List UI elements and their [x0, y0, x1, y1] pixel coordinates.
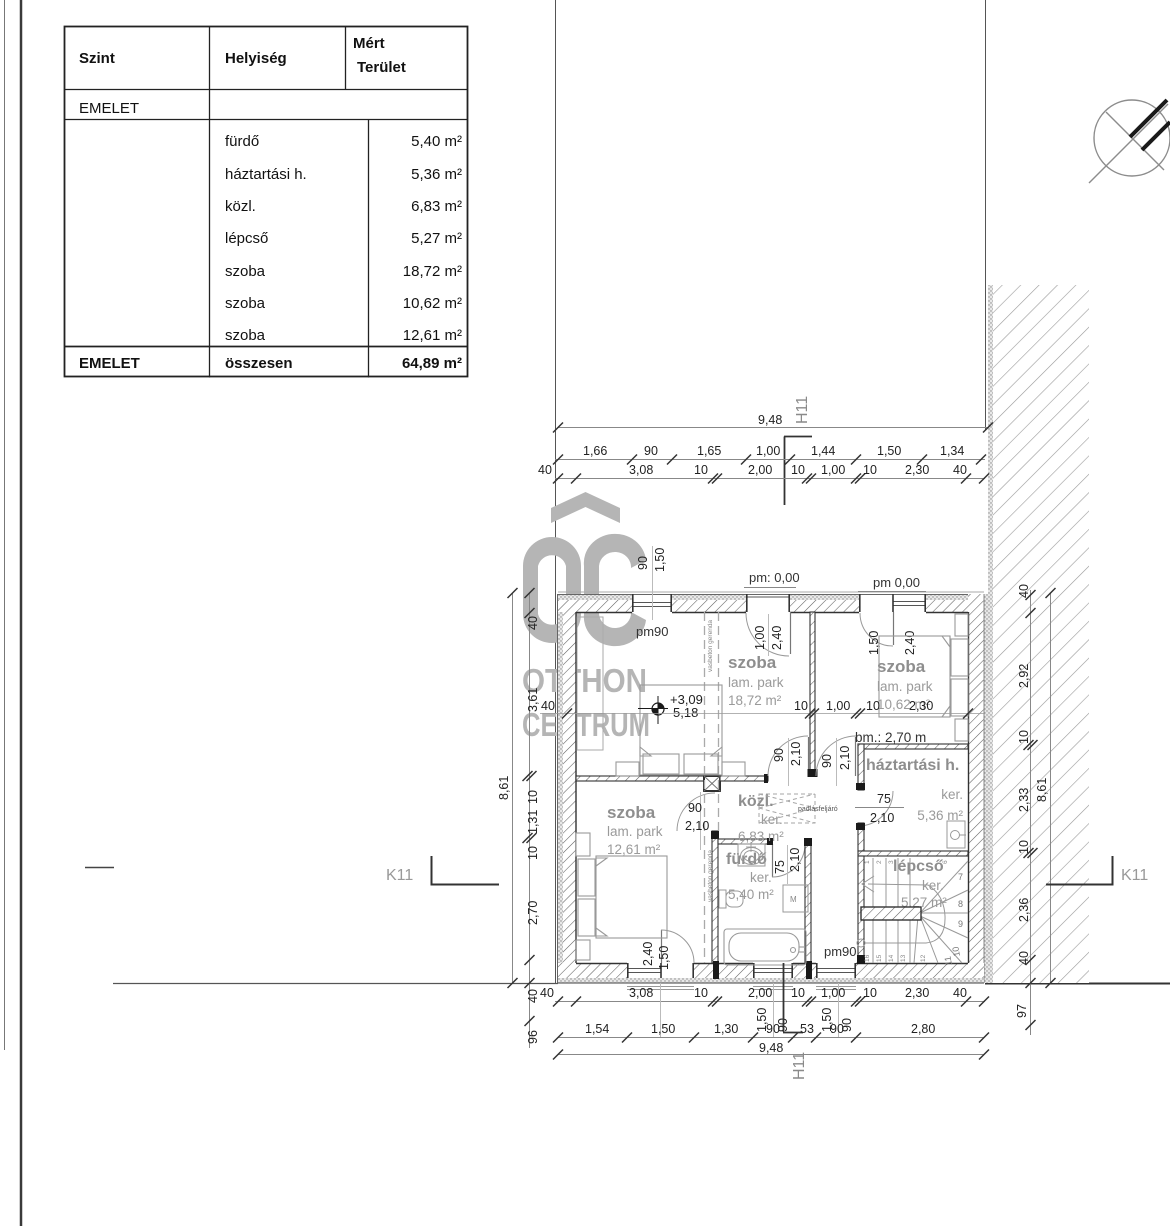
svg-text:lépcső: lépcső — [225, 230, 268, 247]
svg-text:1,00: 1,00 — [753, 626, 767, 650]
svg-text:közl.: közl. — [738, 793, 774, 810]
svg-text:75: 75 — [877, 792, 891, 806]
svg-text:97: 97 — [1015, 1004, 1029, 1018]
svg-text:pm90: pm90 — [636, 624, 669, 639]
svg-text:lam. park: lam. park — [877, 679, 933, 694]
svg-text:H11: H11 — [791, 1052, 808, 1080]
svg-text:1,65: 1,65 — [697, 444, 721, 458]
svg-text:1,00: 1,00 — [821, 986, 845, 1000]
svg-text:18,72 m²: 18,72 m² — [403, 263, 462, 280]
svg-text:1,50: 1,50 — [651, 1022, 675, 1036]
svg-text:2,40: 2,40 — [641, 942, 655, 966]
svg-text:5,40 m²: 5,40 m² — [728, 887, 774, 902]
svg-text:10: 10 — [866, 699, 880, 713]
svg-text:2,10: 2,10 — [870, 811, 894, 825]
svg-text:10: 10 — [863, 986, 877, 1000]
svg-text:5,36 m²: 5,36 m² — [411, 166, 462, 183]
svg-text:9,48: 9,48 — [759, 1041, 783, 1055]
svg-text:40: 40 — [526, 989, 540, 1003]
svg-text:6,83 m²: 6,83 m² — [411, 198, 462, 215]
svg-text:szoba: szoba — [877, 657, 926, 676]
svg-text:2,00: 2,00 — [748, 986, 772, 1000]
svg-text:1,00: 1,00 — [756, 444, 780, 458]
svg-text:40: 40 — [540, 986, 554, 1000]
svg-text:lam. park: lam. park — [607, 824, 663, 839]
svg-text:18,72 m²: 18,72 m² — [728, 693, 782, 708]
svg-text:2,30: 2,30 — [905, 986, 929, 1000]
svg-text:3,61: 3,61 — [526, 688, 540, 712]
svg-text:3: 3 — [888, 860, 895, 864]
svg-text:szoba: szoba — [225, 263, 266, 280]
svg-text:5,40 m²: 5,40 m² — [411, 133, 462, 150]
svg-text:10: 10 — [1017, 730, 1031, 744]
svg-text:12,61 m²: 12,61 m² — [607, 842, 661, 857]
svg-text:ker.: ker. — [761, 812, 783, 827]
svg-text:K11: K11 — [386, 867, 413, 884]
svg-text:9: 9 — [958, 919, 963, 929]
svg-text:szoba: szoba — [225, 327, 266, 344]
svg-text:1,34: 1,34 — [940, 444, 964, 458]
svg-text:12,61 m²: 12,61 m² — [403, 327, 462, 344]
svg-text:háztartási h.: háztartási h. — [866, 757, 959, 774]
svg-text:közl.: közl. — [225, 198, 256, 215]
svg-text:10: 10 — [526, 790, 540, 804]
svg-text:90: 90 — [766, 1022, 780, 1036]
svg-text:vasbeton gerenda: vasbeton gerenda — [707, 620, 714, 672]
svg-text:11: 11 — [942, 955, 953, 966]
svg-text:12: 12 — [920, 954, 927, 962]
svg-text:összesen: összesen — [225, 355, 293, 372]
svg-text:10: 10 — [694, 986, 708, 1000]
svg-text:8,61: 8,61 — [1035, 778, 1049, 802]
svg-text:40: 40 — [953, 463, 967, 477]
svg-text:40: 40 — [953, 986, 967, 1000]
svg-text:2,40: 2,40 — [770, 626, 784, 650]
svg-text:1,50: 1,50 — [877, 444, 901, 458]
svg-text:H11: H11 — [794, 396, 811, 424]
svg-text:6,83 m²: 6,83 m² — [738, 829, 784, 844]
svg-text:90: 90 — [772, 748, 786, 762]
svg-text:1,00: 1,00 — [826, 699, 850, 713]
svg-text:1,66: 1,66 — [583, 444, 607, 458]
svg-text:ker.: ker. — [750, 870, 772, 885]
svg-text:2,10: 2,10 — [789, 742, 803, 766]
svg-text:9,48: 9,48 — [758, 413, 782, 427]
svg-text:5,18: 5,18 — [673, 705, 698, 720]
svg-text:1,50: 1,50 — [657, 946, 671, 970]
svg-text:15: 15 — [876, 954, 883, 962]
svg-text:3,08: 3,08 — [629, 463, 653, 477]
svg-text:7: 7 — [958, 872, 963, 882]
svg-text:2: 2 — [876, 860, 883, 864]
svg-text:pm90: pm90 — [824, 944, 857, 959]
svg-text:64,89 m²: 64,89 m² — [402, 355, 462, 372]
svg-text:10: 10 — [1017, 840, 1031, 854]
svg-text:2,40: 2,40 — [903, 631, 917, 655]
svg-text:2,92: 2,92 — [1017, 664, 1031, 688]
svg-text:10: 10 — [526, 846, 540, 860]
svg-text:90: 90 — [820, 754, 834, 768]
svg-text:2,00: 2,00 — [748, 463, 772, 477]
svg-text:2,30: 2,30 — [905, 463, 929, 477]
svg-text:fürdő: fürdő — [225, 133, 259, 150]
svg-text:2,10: 2,10 — [788, 848, 802, 872]
svg-text:40: 40 — [541, 699, 555, 713]
svg-text:háztartási h.: háztartási h. — [225, 166, 307, 183]
svg-text:M: M — [790, 895, 797, 904]
svg-text:1,31: 1,31 — [526, 810, 540, 834]
svg-text:2,70: 2,70 — [526, 901, 540, 925]
svg-text:padlásfeljáró: padlásfeljáró — [798, 806, 838, 813]
svg-text:10,62 m²: 10,62 m² — [403, 295, 462, 312]
svg-text:ker.: ker. — [941, 787, 963, 802]
svg-text:96: 96 — [526, 1030, 540, 1044]
svg-text:vasbeton gerenda: vasbeton gerenda — [707, 850, 714, 902]
svg-text:90: 90 — [636, 556, 650, 570]
svg-text:14: 14 — [888, 954, 895, 962]
svg-text:1: 1 — [864, 860, 871, 864]
svg-text:40: 40 — [526, 616, 540, 630]
svg-text:OTTHON: OTTHON — [522, 662, 647, 699]
svg-text:8: 8 — [958, 899, 963, 909]
svg-text:szoba: szoba — [225, 295, 266, 312]
svg-text:EMELET: EMELET — [79, 355, 140, 372]
svg-text:10: 10 — [791, 463, 805, 477]
svg-text:bm.: 2,70 m: bm.: 2,70 m — [855, 730, 926, 745]
svg-text:EMELET: EMELET — [79, 100, 139, 117]
svg-text:2,33: 2,33 — [1017, 788, 1031, 812]
svg-text:Mért: Mért — [353, 35, 385, 52]
svg-text:10: 10 — [863, 463, 877, 477]
svg-text:10: 10 — [791, 986, 805, 1000]
svg-text:1,44: 1,44 — [811, 444, 835, 458]
svg-text:2,10: 2,10 — [685, 819, 709, 833]
svg-text:13: 13 — [900, 954, 907, 962]
svg-text:2,30: 2,30 — [909, 699, 933, 713]
svg-text:90: 90 — [830, 1022, 844, 1036]
svg-text:lépcső: lépcső — [893, 858, 944, 875]
svg-text:53: 53 — [800, 1022, 814, 1036]
svg-text:5,27 m²: 5,27 m² — [411, 230, 462, 247]
svg-text:K11: K11 — [1121, 867, 1148, 884]
svg-text:8,61: 8,61 — [497, 776, 511, 800]
svg-text:pm 0,00: pm 0,00 — [873, 575, 920, 590]
svg-text:Szint: Szint — [79, 50, 115, 67]
svg-text:1,00: 1,00 — [821, 463, 845, 477]
svg-text:90: 90 — [688, 801, 702, 815]
svg-text:40: 40 — [1017, 951, 1031, 965]
svg-text:1,30: 1,30 — [714, 1022, 738, 1036]
svg-text:1,54: 1,54 — [585, 1022, 609, 1036]
svg-text:szoba: szoba — [607, 803, 656, 822]
svg-text:1,50: 1,50 — [653, 548, 667, 572]
svg-text:6: 6 — [942, 860, 949, 864]
svg-text:2,36: 2,36 — [1017, 898, 1031, 922]
svg-text:40: 40 — [538, 463, 552, 477]
svg-text:lam. park: lam. park — [728, 675, 784, 690]
svg-text:75: 75 — [773, 860, 787, 874]
svg-text:16: 16 — [864, 954, 871, 962]
svg-text:10: 10 — [794, 699, 808, 713]
svg-text:szoba: szoba — [728, 653, 777, 672]
svg-text:Helyiség: Helyiség — [225, 50, 287, 67]
svg-text:3,08: 3,08 — [629, 986, 653, 1000]
svg-text:pm: 0,00: pm: 0,00 — [749, 570, 800, 585]
svg-text:90: 90 — [644, 444, 658, 458]
svg-text:2,80: 2,80 — [911, 1022, 935, 1036]
svg-text:10: 10 — [694, 463, 708, 477]
svg-text:40: 40 — [1017, 584, 1031, 598]
svg-text:2,10: 2,10 — [838, 746, 852, 770]
svg-text:Terület: Terület — [357, 59, 406, 76]
